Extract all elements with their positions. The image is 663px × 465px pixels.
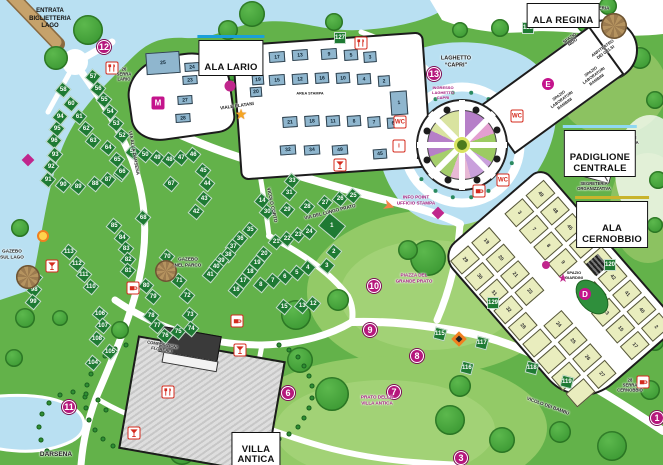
- tree: [452, 22, 468, 38]
- lario-room: 10: [336, 72, 351, 84]
- hedge-dot: [95, 397, 100, 402]
- cafe-icon: [127, 282, 140, 295]
- hedge-dot: [287, 432, 292, 437]
- map-marker-8: 8: [410, 349, 424, 363]
- badge-m: M: [152, 97, 165, 110]
- area-label: INFO POINT UFFICIO STAMPA: [397, 195, 435, 206]
- bar-icon: [234, 344, 247, 357]
- hedge-dot: [38, 437, 43, 442]
- area-label: 26 SERRA LARIO: [117, 66, 132, 81]
- area-label: 28 SERRA CERNOBBIO: [614, 377, 647, 392]
- map-marker-11: 11: [62, 400, 76, 414]
- tree: [315, 377, 349, 411]
- tree: [44, 46, 68, 70]
- badge-e: E: [542, 78, 554, 90]
- lario-room: 27: [177, 95, 193, 105]
- hedge-dot: [295, 354, 300, 359]
- rotunda-center: [454, 137, 470, 153]
- rotunda-tree-dot: [473, 176, 480, 183]
- info-icon: i: [393, 140, 406, 153]
- wc-icon: WC: [497, 174, 510, 187]
- hedge-dot: [104, 408, 109, 413]
- diamond-magenta-symbol: [434, 209, 443, 218]
- lario-room: 32: [280, 144, 297, 155]
- area-label: PRATO DELLA VILLA ANTICA: [361, 395, 393, 406]
- area-label: AREA STAMPA: [296, 92, 323, 97]
- tree: [489, 427, 515, 453]
- tree: [52, 310, 68, 326]
- hedge-dot: [287, 347, 292, 352]
- lario-room: 28: [175, 113, 191, 123]
- area-label: INGRESSO LAGHETTO CAPRI: [432, 86, 454, 100]
- sun-symbol: [37, 230, 49, 242]
- hedge-dot: [83, 391, 88, 396]
- lario-room: 7: [367, 116, 381, 128]
- hedge-dot: [37, 424, 42, 429]
- tree: [398, 240, 418, 260]
- tree: [647, 217, 663, 233]
- lario-room: 17: [269, 51, 286, 63]
- tree: [649, 171, 663, 189]
- rotunda-tree-dot: [444, 177, 451, 184]
- rotunda-tree-dot: [494, 156, 501, 163]
- tree: [327, 289, 349, 311]
- area-label: PIAZZA DEL GRANDE PRATO: [396, 273, 433, 284]
- lario-room: 3: [363, 51, 377, 63]
- section-label-ala-cernobbio: ALA CERNOBBIO: [576, 201, 648, 248]
- area-label: DARSENA: [40, 451, 72, 459]
- lario-room: 34: [304, 144, 321, 155]
- hedge-dot: [309, 395, 314, 400]
- park-map: ALA LARIO ALA REGINA PADIGLIONE CENTRALE…: [0, 0, 663, 465]
- hedge-dot: [101, 436, 106, 441]
- area-label: SPAZIO GIARDINI: [565, 271, 583, 281]
- bar-icon: [46, 260, 59, 273]
- hedge-dot: [309, 384, 314, 389]
- restaurant-icon: [162, 386, 175, 399]
- tree: [15, 308, 35, 328]
- map-marker-13: 13: [427, 67, 441, 81]
- tree: [325, 13, 343, 31]
- tree: [239, 1, 265, 27]
- hedge-dot: [87, 417, 92, 422]
- lario-room: 21: [282, 116, 298, 128]
- map-marker-12: 12: [97, 40, 111, 54]
- map-marker-3: 3: [454, 451, 468, 465]
- section-label-text: ALA REGINA: [533, 15, 594, 26]
- tree: [435, 405, 465, 435]
- hedge-dot: [47, 400, 52, 405]
- lario-room: 18: [304, 115, 320, 127]
- hedge-dot: [302, 416, 307, 421]
- rotunda-tree-dot: [424, 156, 431, 163]
- lario-room: 16: [315, 72, 330, 84]
- lario-room: 4: [357, 73, 372, 85]
- hedge-dot: [302, 363, 307, 368]
- section-label-text: VILLA ANTICA: [237, 444, 274, 465]
- section-label-ala-regina: ALA REGINA: [527, 3, 600, 28]
- bar-icon: [128, 427, 141, 440]
- tree: [111, 321, 129, 339]
- tree: [646, 91, 663, 109]
- tree: [73, 15, 103, 45]
- lario-room: 25: [145, 51, 180, 75]
- hedge-dot: [93, 427, 98, 432]
- lario-room: 49: [332, 144, 349, 155]
- gazebo-sul-lago: [16, 265, 40, 289]
- bar-icon: [334, 159, 347, 172]
- lario-room: 2: [378, 75, 391, 87]
- hedge-dot: [123, 342, 128, 347]
- rotunda-tree-dot: [444, 107, 451, 114]
- diamond-magenta-symbol: [24, 156, 33, 165]
- section-label-ala-lario: ALA LARIO: [198, 40, 263, 76]
- dot-magenta-small: [542, 261, 550, 269]
- map-marker-6: 6: [281, 386, 295, 400]
- lario-room: 20: [250, 87, 263, 98]
- area-label: GAZEBO NEL PARCO: [175, 257, 202, 268]
- hedge-dot: [307, 406, 312, 411]
- rotunda-tree-dot: [493, 127, 500, 134]
- lario-room: 45: [373, 149, 388, 160]
- exhibitor-plot: 129: [487, 297, 499, 309]
- area-label: LAGHETTO “CAPRI”: [441, 55, 471, 68]
- hedge-dot: [84, 383, 89, 388]
- wc-icon: WC: [511, 110, 524, 123]
- hedge-dot: [277, 343, 282, 348]
- tree: [597, 431, 627, 461]
- hedge-dot: [88, 371, 93, 376]
- lario-room: 15: [269, 74, 286, 86]
- wc-icon: WC: [394, 116, 407, 129]
- hedge-dot: [58, 393, 63, 398]
- section-label-text: ALA CERNOBBIO: [582, 223, 642, 245]
- parasol-biglietteria: [601, 13, 627, 39]
- diamond-orange-symbol: [454, 334, 465, 345]
- restaurant-icon: [355, 37, 368, 50]
- badge-d: D: [579, 288, 591, 300]
- lario-room: 12: [292, 73, 309, 85]
- section-color-line: [575, 196, 649, 199]
- rotunda-tree-dot: [473, 106, 480, 113]
- map-marker-9: 9: [363, 323, 377, 337]
- tree: [11, 219, 29, 237]
- tree: [549, 421, 571, 443]
- tree: [449, 375, 471, 397]
- lario-room: 13: [292, 49, 309, 61]
- exhibitor-plot: 120: [604, 259, 616, 271]
- map-marker-1: 1: [650, 411, 663, 425]
- lario-room: 1: [390, 90, 409, 115]
- area-label: GAZEBO SUL LAGO: [0, 249, 24, 260]
- section-label-text: PADIGLIONE CENTRALE: [570, 152, 630, 174]
- lario-room: 9: [321, 48, 338, 60]
- lario-room: 19: [252, 75, 265, 86]
- tree: [5, 349, 23, 367]
- area-label: SEGRETERIA ORGANIZZATIVA: [577, 181, 611, 191]
- lario-room: 5: [344, 49, 359, 61]
- lario-room: 11: [326, 115, 341, 127]
- map-marker-10: 10: [367, 279, 381, 293]
- tree: [491, 19, 509, 37]
- rotunda-tree-dot: [423, 127, 430, 134]
- cafe-icon: [473, 185, 486, 198]
- hedge-dot: [39, 411, 44, 416]
- section-label-text: ALA LARIO: [204, 62, 257, 73]
- section-color-line: [197, 35, 264, 38]
- hedge-dot: [307, 373, 312, 378]
- section-label-villa-antica: VILLA ANTICA: [231, 432, 280, 465]
- lario-room: 8: [347, 115, 362, 127]
- hedge-dot: [110, 443, 115, 448]
- cafe-icon: [231, 315, 244, 328]
- hedge-dot: [295, 425, 300, 430]
- exhibitor-plot: 127: [334, 32, 346, 44]
- dot-magenta-golfo-platani: [225, 81, 236, 92]
- hedge-dot: [83, 406, 88, 411]
- lario-room: 23: [182, 75, 198, 85]
- section-label-padiglione-centrale: PADIGLIONE CENTRALE: [564, 130, 636, 177]
- direction-arrow-icon: ➤: [383, 197, 396, 216]
- section-color-line: [563, 125, 637, 128]
- hedge-dot: [70, 390, 75, 395]
- entrance-label: ENTRATA BIGLIETTERIA LAGO: [29, 8, 71, 31]
